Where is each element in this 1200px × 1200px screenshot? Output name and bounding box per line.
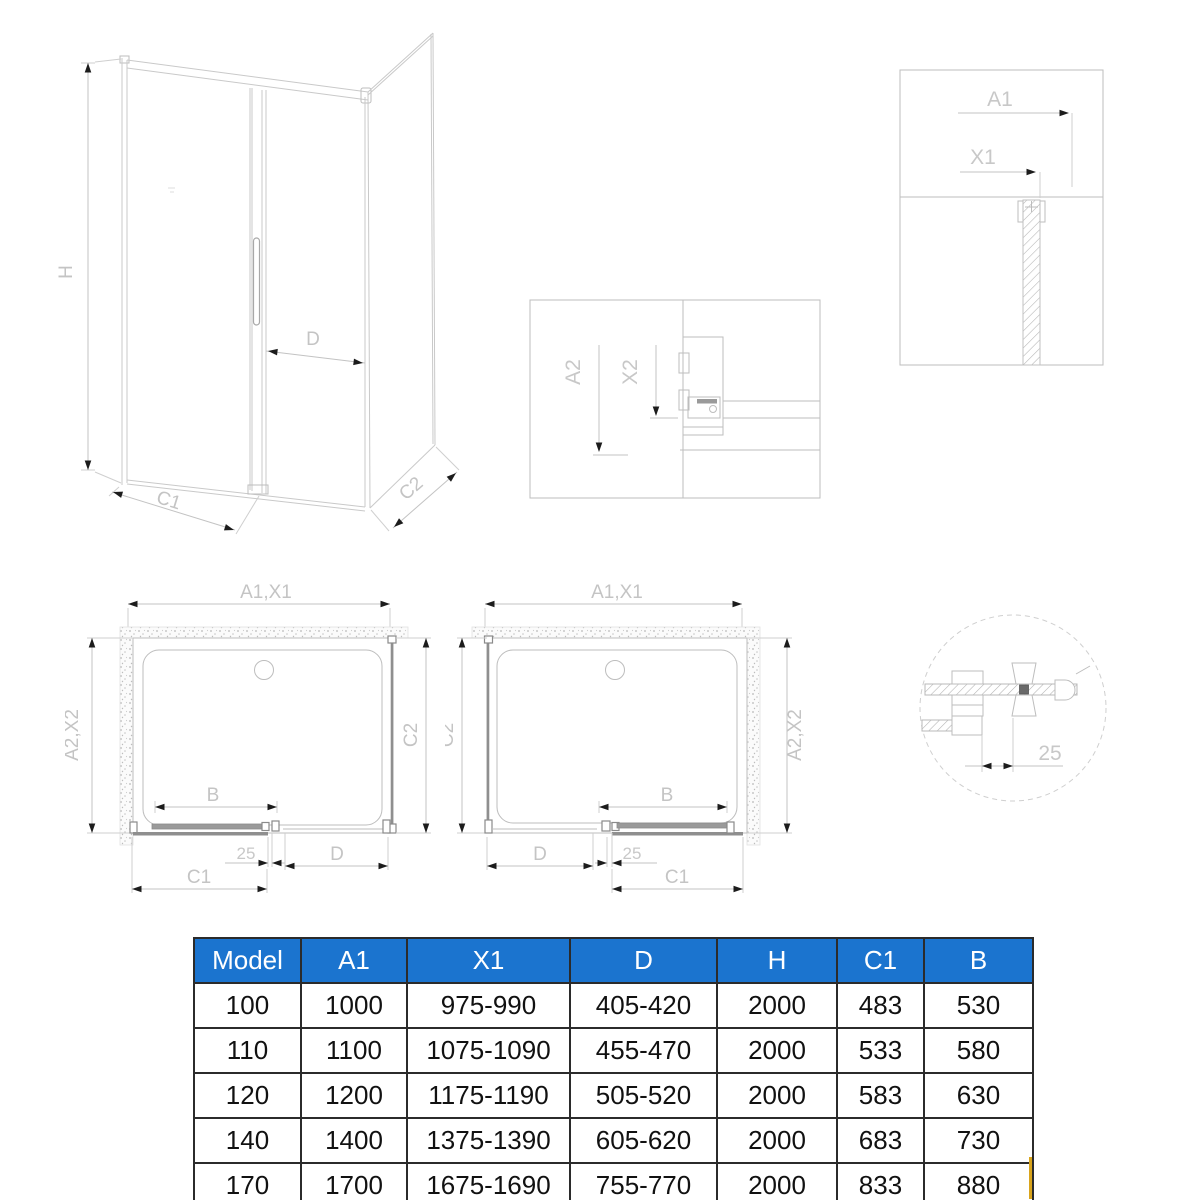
col-header-c1: C1	[837, 938, 924, 983]
door-handle	[254, 238, 260, 325]
col-header-h: H	[717, 938, 837, 983]
plan-view-right: A1,X1 C2 A2,X2 B	[445, 575, 825, 905]
table-cell: 880	[924, 1163, 1033, 1200]
plan-left-slide-label: C1	[187, 867, 211, 888]
table-cell: 2000	[717, 1163, 837, 1200]
dim-label-x2: X2	[619, 359, 642, 385]
table-cell: 1375-1390	[407, 1118, 570, 1163]
table-cell: 683	[837, 1118, 924, 1163]
dimension-arrow	[1027, 169, 1037, 176]
dim-label-d: D	[306, 329, 320, 350]
dimension-arrow	[259, 860, 269, 867]
detail-bubble-circle	[920, 615, 1106, 801]
table-cell: 730	[924, 1118, 1033, 1163]
dim-label-h: H	[56, 265, 77, 279]
spec-table: Model A1 X1 D H C1 B 1001000975-990405-4…	[193, 937, 1034, 1200]
plan-right-side-label: C2	[445, 723, 458, 747]
table-cell: 120	[194, 1073, 301, 1118]
plan-right-slide-label: C1	[665, 867, 689, 888]
plan-right-width-label: A1,X1	[591, 582, 643, 603]
dimension-arrow	[224, 524, 235, 533]
dimension-arrow	[423, 824, 430, 834]
door-handle-knob	[602, 821, 610, 831]
plan-right-depth-label: A2,X2	[785, 709, 806, 761]
table-cell: 2000	[717, 1118, 837, 1163]
table-cell: 833	[837, 1163, 924, 1200]
dimension-arrow	[734, 886, 744, 893]
col-header-a1: A1	[301, 938, 407, 983]
table-cell: 533	[837, 1028, 924, 1073]
plan-left-adjust-label: 25	[237, 844, 256, 863]
table-cell: 505-520	[570, 1073, 717, 1118]
table-cell: 1100	[301, 1028, 407, 1073]
dimension-arrow	[612, 886, 622, 893]
table-cell: 170	[194, 1163, 301, 1200]
table-cell: 583	[837, 1073, 924, 1118]
plan-left-side-label: C2	[401, 723, 422, 747]
dimension-arrow	[784, 638, 791, 648]
dimension-arrow	[459, 638, 466, 648]
dimension-arrow	[132, 886, 142, 893]
dimension-arrow	[285, 863, 295, 870]
table-row: 17017001675-1690755-7702000833880	[194, 1163, 1033, 1200]
dimension-arrow	[381, 601, 391, 608]
table-row: 11011001075-1090455-4702000533580	[194, 1028, 1033, 1073]
dim-label-a1: A1	[987, 88, 1013, 111]
dimension-arrow	[596, 443, 603, 453]
dim-label-x1: X1	[970, 146, 996, 169]
plan-right-adjust-label: 25	[623, 844, 642, 863]
spec-table-header-row: Model A1 X1 D H C1 B	[194, 938, 1033, 983]
dimension-arrow	[487, 863, 497, 870]
table-cell: 605-620	[570, 1118, 717, 1163]
dimension-arrow	[1060, 110, 1070, 117]
door-handle-knob	[272, 821, 279, 831]
detail-adjust-label: 25	[1038, 742, 1061, 765]
col-header-x1: X1	[407, 938, 570, 983]
table-cell: 1700	[301, 1163, 407, 1200]
table-cell: 1000	[301, 983, 407, 1028]
table-cell: 140	[194, 1118, 301, 1163]
table-cell: 530	[924, 983, 1033, 1028]
col-header-d: D	[570, 938, 717, 983]
dim-label-a2: A2	[562, 359, 585, 385]
table-cell: 1400	[301, 1118, 407, 1163]
wall-adjustment-detail: 25	[900, 598, 1130, 828]
dim-label-c2: C2	[395, 473, 427, 505]
plan-right-b-label: B	[661, 785, 674, 806]
table-cell: 975-990	[407, 983, 570, 1028]
table-cell: 2000	[717, 1028, 837, 1073]
dimension-arrow	[379, 863, 389, 870]
roller-detail-a2x2: A2 X2	[525, 295, 825, 505]
table-cell: 2000	[717, 983, 837, 1028]
table-cell: 110	[194, 1028, 301, 1073]
plan-left-b-label: B	[207, 785, 220, 806]
dimension-arrow	[485, 601, 495, 608]
plan-left-depth-label: A2,X2	[65, 709, 83, 761]
dimension-arrow	[423, 638, 430, 648]
table-cell: 630	[924, 1073, 1033, 1118]
dimension-arrow	[459, 824, 466, 834]
dimension-arrow	[653, 407, 660, 417]
table-cell: 100	[194, 983, 301, 1028]
wall-profile-detail-a1x1: A1 X1	[895, 60, 1110, 370]
dimension-arrow	[599, 804, 609, 811]
col-header-b: B	[924, 938, 1033, 983]
table-row: 1001000975-990405-4202000483530	[194, 983, 1033, 1028]
sliding-door-panel	[152, 824, 267, 829]
table-cell: 1175-1190	[407, 1073, 570, 1118]
table-cell: 455-470	[570, 1028, 717, 1073]
dimension-arrow	[784, 824, 791, 834]
table-cell: 1200	[301, 1073, 407, 1118]
table-cell: 483	[837, 983, 924, 1028]
spec-table-body: 1001000975-990405-4202000483530110110010…	[194, 983, 1033, 1200]
dimension-arrow	[85, 461, 92, 471]
dimension-arrow	[128, 601, 138, 608]
sliding-door-panel	[617, 823, 733, 828]
plan-left-opening-label: D	[330, 844, 344, 865]
table-cell: 405-420	[570, 983, 717, 1028]
dimension-arrow	[584, 863, 594, 870]
table-cell: 755-770	[570, 1163, 717, 1200]
dimension-arrow	[272, 860, 282, 867]
dimension-arrow	[612, 860, 622, 867]
table-cell: 2000	[717, 1073, 837, 1118]
col-header-model: Model	[194, 938, 301, 983]
dimension-arrow	[112, 489, 123, 498]
plan-left-width-label: A1,X1	[240, 582, 292, 603]
table-cell: 1075-1090	[407, 1028, 570, 1073]
table-row: 12012001175-1190505-5202000583630	[194, 1073, 1033, 1118]
table-cell: 1675-1690	[407, 1163, 570, 1200]
plan-right-opening-label: D	[533, 844, 547, 865]
dimension-arrow	[718, 804, 728, 811]
table-row: 14014001375-1390605-6202000683730	[194, 1118, 1033, 1163]
dimension-arrow	[155, 804, 165, 811]
plan-view-left: A1,X1 A2,X2 C2 B	[65, 575, 445, 905]
table-cell: 580	[924, 1028, 1033, 1073]
dimension-arrow	[982, 763, 992, 770]
perspective-drawing: H D C1 C2	[55, 20, 475, 550]
dimension-arrow	[733, 601, 743, 608]
dimension-arrow	[85, 63, 92, 73]
dimension-arrow	[268, 804, 278, 811]
dimension-arrow	[258, 886, 268, 893]
page: H D C1 C2 A1 X1	[0, 0, 1200, 1200]
accent-gold-line	[1029, 1157, 1032, 1199]
dimension-arrow	[89, 824, 96, 834]
dimension-arrow	[89, 638, 96, 648]
dim-label-c1: C1	[154, 487, 183, 514]
dimension-arrow	[598, 860, 608, 867]
dimension-arrow	[1004, 763, 1014, 770]
